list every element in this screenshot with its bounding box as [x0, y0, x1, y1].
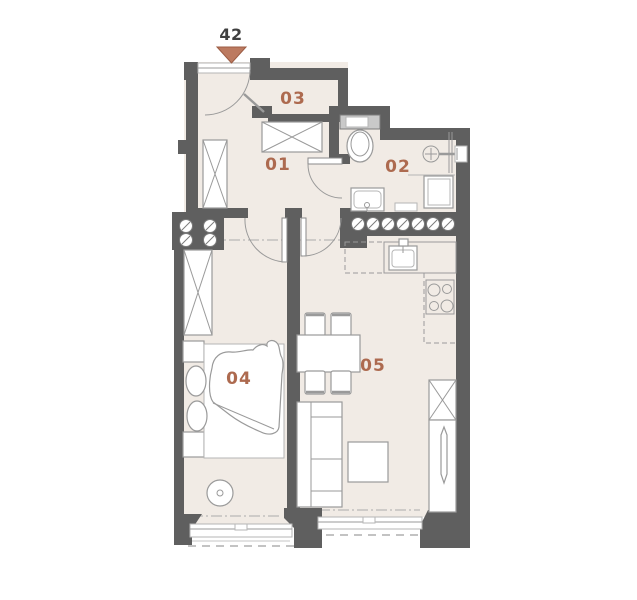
floor-plan-page: 01 02 03 04 05 42	[0, 0, 637, 600]
room-label-03: 03	[280, 89, 306, 109]
living-window-right-jamb	[420, 510, 456, 548]
chair	[331, 371, 351, 394]
bedroom-wardrobe	[184, 250, 212, 335]
entry-threshold	[198, 63, 250, 73]
washing-machine	[424, 176, 453, 208]
washbasin	[351, 188, 384, 211]
entry-left-block	[184, 62, 198, 80]
nightstand	[183, 432, 204, 457]
left-wall-notch	[178, 140, 186, 154]
entrance-arrow-icon	[217, 47, 246, 63]
hall-closet-top	[262, 122, 322, 152]
right-wall	[456, 128, 470, 548]
living-wardrobe	[429, 380, 456, 512]
chair	[331, 313, 351, 336]
left-wall-upper	[186, 80, 198, 213]
unit-marker: 42	[217, 25, 246, 63]
room03-door-jamb	[258, 70, 270, 79]
room-label-01: 01	[265, 155, 291, 175]
coffee-table	[348, 442, 388, 482]
shaft-column-left	[172, 212, 224, 250]
nightstand	[183, 341, 204, 362]
door-stub-wall	[285, 208, 302, 218]
chair	[305, 371, 325, 394]
hall-wardrobe-left	[203, 140, 227, 208]
room-label-05: 05	[360, 356, 386, 376]
bedroom-window	[188, 524, 300, 546]
sofa	[297, 402, 342, 507]
radiator	[441, 427, 447, 483]
room-label-02: 02	[385, 157, 411, 177]
bedroom-left-wall	[174, 250, 184, 514]
living-window	[318, 517, 422, 535]
floor-plan-drawing: 01 02 03 04 05 42	[0, 0, 637, 600]
pillow	[187, 401, 207, 431]
pillow	[186, 366, 206, 396]
stool	[207, 480, 233, 506]
chair	[305, 313, 325, 336]
unit-number: 42	[219, 25, 242, 44]
bath-shelf	[395, 203, 417, 211]
dining-table	[297, 335, 360, 372]
room-label-04: 04	[226, 369, 252, 389]
